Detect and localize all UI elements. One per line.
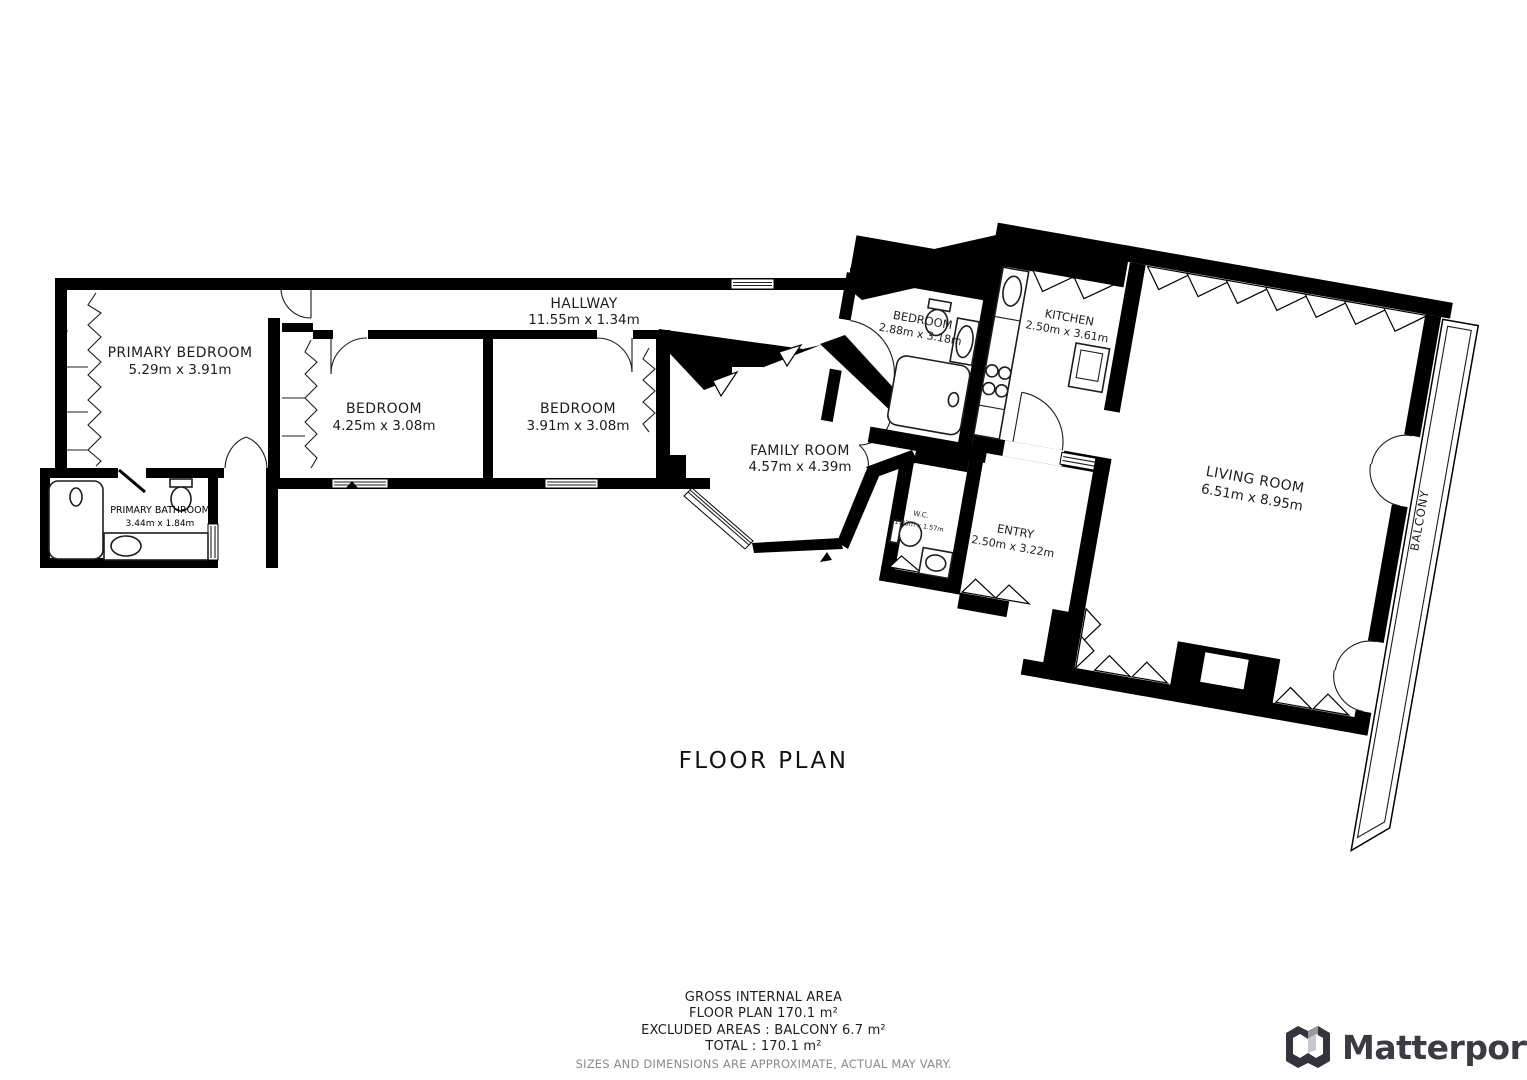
room-label-bedroom-1: BEDROOM 4.25m x 3.08m [333, 401, 436, 434]
room-dims: 11.55m x 1.34m [528, 312, 640, 328]
room-name: PRIMARY BATHROOM [110, 505, 210, 516]
room-dims: 4.57m x 4.39m [749, 459, 852, 475]
room-dims: 4.25m x 3.08m [333, 418, 436, 434]
room-name: PRIMARY BEDROOM [108, 345, 253, 361]
room-name: BEDROOM [346, 401, 422, 417]
room-name: BEDROOM [540, 401, 616, 417]
room-label-living-room: LIVING ROOM 6.51m x 8.95m [1200, 463, 1307, 514]
room-label-bedroom-2: BEDROOM 3.91m x 3.08m [527, 401, 630, 434]
room-name: W.C. [913, 509, 930, 520]
room-label-family-room: FAMILY ROOM 4.57m x 4.39m [749, 443, 852, 475]
floor-plan-page: BEDROOM 2.88m x 3.18m KITCHEN 2.50m x 3.… [0, 0, 1527, 1080]
room-name: HALLWAY [550, 296, 617, 312]
floor-plan-area: FLOOR PLAN 170.1 m² [0, 1006, 1527, 1022]
toilet-tank [170, 479, 192, 487]
room-name: FAMILY ROOM [750, 443, 850, 459]
matterport-brand: Matterport [1285, 1024, 1527, 1070]
room-dims: 5.29m x 3.91m [129, 362, 232, 378]
room-dims: 3.91m x 3.08m [527, 418, 630, 434]
page-title: FLOOR PLAN [0, 748, 1527, 774]
room-label-primary-bathroom: PRIMARY BATHROOM 3.44m x 1.84m [110, 505, 210, 529]
gross-internal-area-label: GROSS INTERNAL AREA [0, 990, 1527, 1006]
room-label-entry: ENTRY 2.50m x 3.22m [970, 517, 1058, 560]
sink-icon [111, 536, 141, 556]
room-label-kitchen: KITCHEN 2.50m x 3.61m [1024, 303, 1112, 345]
matterport-wordmark: Matterport [1342, 1028, 1527, 1067]
room-label-bedroom-suite: BEDROOM 2.88m x 3.18m [878, 306, 966, 348]
wing-curtain-teeth [878, 231, 1427, 717]
matterport-logo-icon [1285, 1024, 1331, 1070]
room-label-primary-bedroom: PRIMARY BEDROOM 5.29m x 3.91m [108, 345, 253, 378]
floor-plan-drawing: BEDROOM 2.88m x 3.18m KITCHEN 2.50m x 3.… [0, 0, 1527, 1080]
room-dims: 3.44m x 1.84m [126, 519, 195, 529]
room-label-hallway: HALLWAY 11.55m x 1.34m [528, 296, 640, 328]
oven-icon [1068, 343, 1109, 392]
